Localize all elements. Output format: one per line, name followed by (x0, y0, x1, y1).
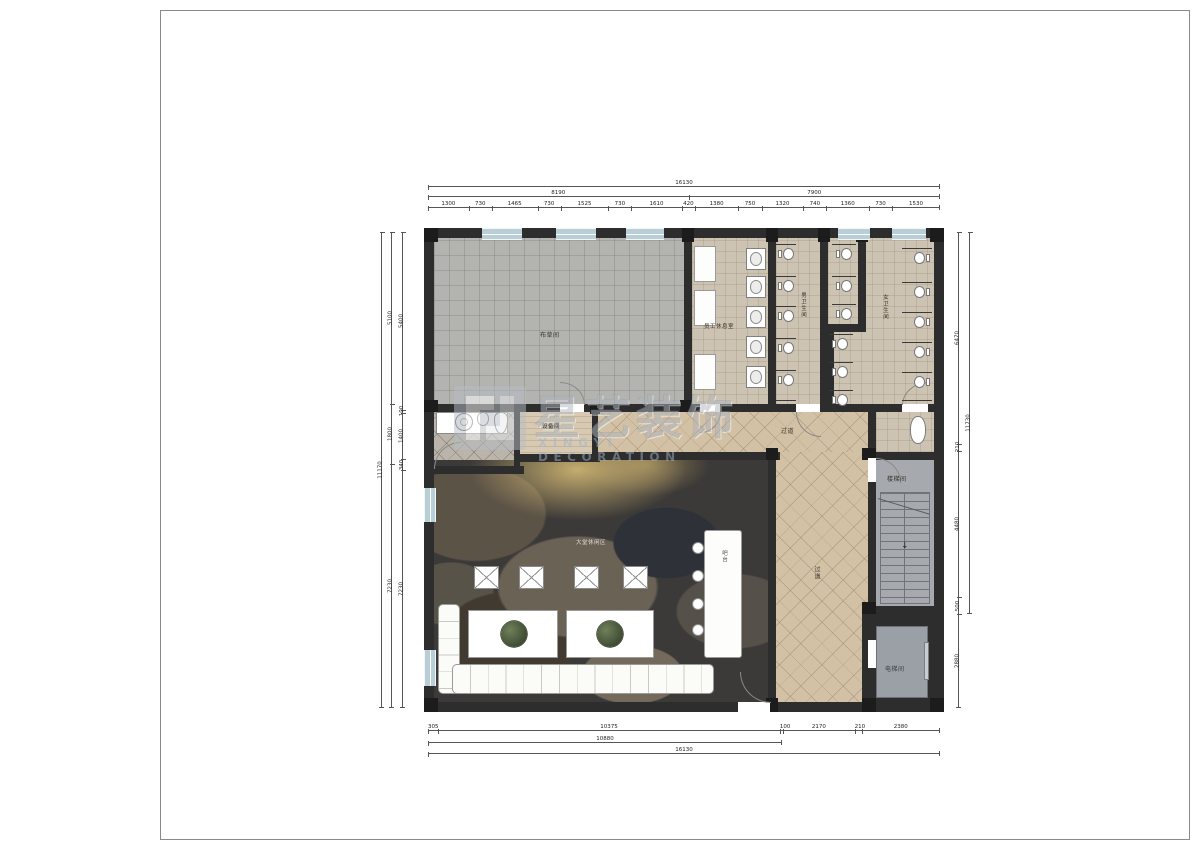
dim-label: 16130 (428, 180, 940, 186)
dim-label: 5400 (399, 314, 405, 328)
dim-label: 730 (538, 201, 561, 207)
dim-label: 1380 (695, 201, 738, 207)
lounge-bed (694, 290, 716, 326)
dim-label: 11170 (377, 461, 383, 479)
label-corridor-v: 过道 (813, 566, 820, 592)
bar-stool (692, 542, 704, 554)
dim-label: 7230 (388, 579, 394, 593)
toilet-icon (778, 248, 794, 260)
stall-partition (776, 244, 796, 245)
label-elevator: 电梯间 (885, 666, 905, 673)
dim-label: 16130 (428, 747, 940, 753)
toilet-icon (778, 280, 794, 292)
column (766, 448, 778, 460)
column (682, 228, 694, 242)
label-mens-toilet: 男卫生间 (799, 292, 806, 338)
toilet-icon (836, 280, 852, 292)
toilet-icon (778, 374, 794, 386)
label-womens-toilet: 女卫生间 (881, 294, 888, 340)
dim-label: 6470 (955, 331, 961, 345)
washing-machine-icon (746, 248, 766, 270)
label-staff-lounge: 员工休息室 (704, 324, 734, 331)
dim-label: 5100 (388, 311, 394, 325)
room-linen (434, 238, 684, 406)
washing-machine-icon (746, 306, 766, 328)
dim-label: 7230 (399, 582, 405, 596)
dim-label: 1800 (388, 427, 394, 441)
lounge-bed (694, 246, 716, 282)
dim-label: 2380 (862, 724, 940, 730)
stall-partition (902, 400, 932, 401)
column (818, 228, 830, 242)
stair-direction-arrow: ↓ (901, 542, 909, 551)
dim-label: 10375 (438, 724, 780, 730)
bar-stool (692, 624, 704, 636)
stall-partition (776, 276, 796, 277)
dim-label: 730 (608, 201, 631, 207)
wall-segment (934, 228, 944, 712)
stall-partition (902, 342, 932, 343)
mop-sink-icon (910, 416, 926, 444)
wall-segment (868, 606, 942, 614)
column (424, 400, 438, 412)
column (930, 228, 944, 242)
wall-segment (858, 232, 866, 328)
wall-segment (768, 228, 776, 412)
toilet-icon (914, 316, 930, 328)
bar-stool (692, 598, 704, 610)
dim-label: 500 (955, 600, 961, 611)
sofa (452, 664, 714, 694)
dim-label: 1525 (561, 201, 609, 207)
toilet-icon (778, 342, 794, 354)
dim-label: 750 (738, 201, 762, 207)
stall-partition (776, 370, 796, 371)
toilet-icon (832, 394, 848, 406)
stall-partition (832, 276, 856, 277)
toilet-icon (778, 310, 794, 322)
watermark-logo-icon (454, 386, 526, 450)
dim-label: 1320 (762, 201, 803, 207)
label-lounge-area: 大堂休闲区 (576, 540, 606, 547)
dim-label: 420 (682, 201, 695, 207)
window (556, 228, 596, 240)
dim-label: 730 (469, 201, 492, 207)
column (424, 228, 438, 242)
dim-label: 1530 (892, 201, 940, 207)
window (838, 228, 870, 240)
watermark: 星艺装饰 XINGYI DECORATION (448, 384, 758, 460)
washing-machine-icon (746, 276, 766, 298)
dim-label: 8190 (428, 190, 689, 196)
window (892, 228, 926, 240)
stall-partition (902, 312, 932, 313)
column (424, 698, 438, 712)
dim-label: 1465 (492, 201, 538, 207)
toilet-icon (832, 338, 848, 350)
column (862, 698, 876, 712)
door-opening (868, 458, 876, 482)
toilet-icon (914, 346, 930, 358)
plant-icon (501, 621, 527, 647)
stall-partition (902, 282, 932, 283)
dim-label: 1300 (428, 201, 469, 207)
dim-label: 730 (869, 201, 892, 207)
toilet-icon (914, 252, 930, 264)
stall-partition (902, 372, 932, 373)
label-bar: 吧台 (720, 550, 727, 572)
window (424, 650, 436, 686)
dim-label: 10880 (428, 736, 782, 742)
watermark-brand-en: XINGYI DECORATION (538, 436, 758, 464)
dim-label: 1360 (826, 201, 869, 207)
toilet-icon (832, 366, 848, 378)
stall-partition (829, 362, 853, 363)
dim-label: 4480 (955, 517, 961, 531)
dim-label: 340 (399, 459, 405, 470)
door-opening (738, 702, 770, 712)
window (626, 228, 664, 240)
toilet-icon (836, 308, 852, 320)
stall-partition (832, 304, 856, 305)
bar-stool (692, 570, 704, 582)
column (766, 228, 778, 242)
door-opening (868, 640, 876, 668)
dim-label: 2880 (955, 654, 961, 668)
dim-label: 2170 (783, 724, 855, 730)
side-table (519, 566, 544, 589)
column (862, 602, 876, 614)
stall-partition (776, 338, 796, 339)
dim-label: 740 (803, 201, 826, 207)
stall-partition (829, 334, 853, 335)
corridor-vertical (776, 452, 868, 704)
plant-icon (597, 621, 623, 647)
label-corridor-h: 过道 (781, 428, 794, 435)
stall-partition (776, 400, 796, 401)
stall-partition (902, 248, 932, 249)
label-equipment: 设备间 (542, 424, 560, 431)
toilet-icon (914, 376, 930, 388)
washing-machine-icon (746, 336, 766, 358)
column (930, 698, 944, 712)
dim-label: 1610 (631, 201, 682, 207)
door-opening (796, 404, 820, 412)
dim-label: 11730 (965, 414, 971, 432)
stall-partition (832, 244, 856, 245)
stall-partition (776, 306, 796, 307)
label-stair: 楼梯间 (887, 476, 907, 483)
dim-label: 210 (855, 724, 862, 730)
dim-label: 7900 (689, 190, 940, 196)
toilet-icon (914, 286, 930, 298)
toilet-icon (836, 248, 852, 260)
window (424, 488, 436, 522)
side-table (474, 566, 499, 589)
side-table (623, 566, 648, 589)
side-table (574, 566, 599, 589)
dim-label: 305 (428, 724, 438, 730)
door-opening (902, 404, 928, 412)
window (482, 228, 522, 240)
elevator-car-icon (876, 626, 928, 698)
dim-label: 1400 (399, 429, 405, 443)
label-linen: 布草间 (540, 332, 560, 339)
elevator-door (924, 642, 929, 680)
stall-partition (829, 390, 853, 391)
